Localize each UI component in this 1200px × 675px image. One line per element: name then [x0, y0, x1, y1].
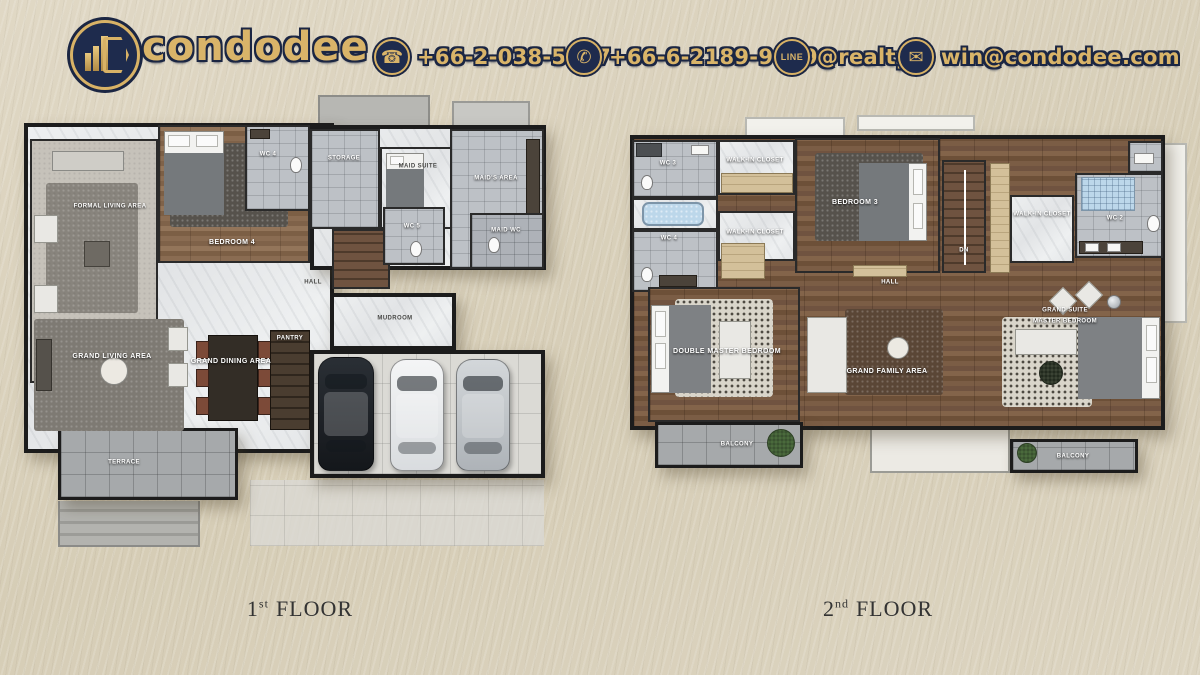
room-label-wc5: WC 5 [404, 223, 421, 230]
car-silver [456, 359, 510, 471]
sink [1085, 243, 1099, 252]
condodee-logo[interactable] [70, 20, 140, 90]
sink [1107, 243, 1121, 252]
car-rear-window [326, 440, 366, 452]
room-label-maid-suite: MAID SUITE [399, 163, 438, 170]
toilet [410, 241, 422, 257]
room-label-grand-suite-line2: MASTER BEDROOM [1033, 318, 1097, 325]
phone-icon: ☎ [374, 39, 410, 75]
email-address: win@condodee.com [941, 45, 1180, 69]
room-label-grand-living: GRAND LIVING AREA [72, 353, 151, 361]
room-label-wc2: WC 2 [1107, 215, 1124, 222]
coffee-table [887, 337, 909, 359]
staircase-down [942, 160, 986, 273]
staircase [332, 229, 390, 289]
line-handle: @realty [817, 45, 910, 69]
contact-line[interactable]: LINE @realty [774, 39, 910, 75]
car-windshield [325, 374, 367, 389]
room-label-wc3: WC 3 [660, 160, 677, 167]
bed-blanket [164, 153, 224, 215]
car-windshield [463, 376, 503, 391]
room-label-balcony-right: BALCONY [1057, 453, 1089, 460]
car-windshield [397, 376, 437, 391]
room-label-hall: HALL [881, 279, 899, 286]
dining-chair [196, 369, 209, 387]
floor1-caption: 1stFLOOR [247, 596, 353, 622]
room-label-wc4: WC 4 [260, 151, 277, 158]
plant [1017, 443, 1037, 463]
flyer-canvas: condodee ☎ +66-2-038-5897 ✆ +66-6-2189-9… [0, 0, 1200, 675]
room-label-pantry: PANTRY [277, 335, 303, 342]
floor1-plan: FORMAL LIVING AREA BEDROOM 4 WC 4 STORAG… [18, 95, 548, 550]
pillow [913, 203, 923, 229]
closet-shelving [990, 163, 1010, 273]
roof-slab [745, 117, 845, 137]
dining-chair [196, 397, 209, 415]
room-label-grand-suite-line1: GRAND SUITE [1042, 307, 1088, 314]
room-label-dn: DN [959, 247, 968, 254]
armchair [168, 363, 188, 387]
logo-building-bar [85, 53, 91, 71]
floor2-caption-word: FLOOR [856, 596, 933, 621]
car-black [318, 357, 374, 471]
pantry-cabinet [270, 330, 310, 430]
contact-email[interactable]: ✉ win@condodee.com [898, 39, 1180, 75]
bed-blanket [386, 169, 424, 207]
pillow [168, 135, 190, 147]
car-roof [324, 392, 368, 436]
whatsapp-icon: ✆ [566, 39, 602, 75]
driveway [250, 480, 544, 546]
armchair [168, 327, 188, 351]
car-roof [462, 394, 504, 438]
car-rear-window [398, 442, 436, 454]
sink-vanity [250, 129, 270, 139]
room-label-bedroom4: BEDROOM 4 [209, 239, 255, 247]
floor1-caption-word: FLOOR [276, 596, 353, 621]
plant [767, 429, 795, 457]
terrace-room [58, 428, 238, 500]
dining-table [208, 335, 258, 421]
bed-blanket [1078, 317, 1142, 399]
sofa [36, 339, 52, 391]
room-label-terrace: TERRACE [108, 459, 140, 466]
pillow [1146, 325, 1157, 351]
car-rear-window [464, 442, 502, 454]
sofa [52, 151, 124, 171]
room-label-formal-living: FORMAL LIVING AREA [74, 203, 147, 210]
room-label-mudroom: MUDROOM [377, 315, 412, 322]
pillow [196, 135, 218, 147]
shower [636, 143, 662, 157]
front-steps [58, 501, 200, 547]
floor2-caption: 2ndFLOOR [823, 596, 933, 622]
storage-room [310, 129, 380, 229]
closet-shelving [721, 173, 793, 193]
brand-name: condodee [142, 24, 369, 70]
maid-wc-room [470, 213, 544, 269]
car-roof [396, 394, 438, 438]
console-table [853, 265, 907, 277]
room-label-hall: HALL [304, 279, 322, 286]
room-label-closet-top: WALK-IN CLOSET [726, 157, 783, 164]
room-label-closet-right: WALK-IN CLOSET [1013, 211, 1070, 218]
floor1-caption-ordinal: st [259, 597, 269, 611]
walkin-closet-right-room [1010, 195, 1074, 263]
toilet [641, 175, 653, 190]
toilet [290, 157, 302, 173]
bathtub [642, 202, 704, 226]
floor2-caption-number: 2 [823, 596, 835, 621]
floor2-caption-ordinal: nd [835, 597, 849, 611]
room-label-balcony-left: BALCONY [721, 441, 753, 448]
pillow [1146, 357, 1157, 383]
chaise-lounge [807, 317, 847, 393]
room-label-wc4-upper: WC 4 [661, 235, 678, 242]
logo-building-bar [93, 46, 99, 71]
pillow [655, 311, 666, 337]
pillow [913, 169, 923, 195]
room-label-grand-family: GRAND FAMILY AREA [847, 368, 928, 376]
toilet [641, 267, 653, 282]
armchair [34, 215, 58, 243]
closet-shelving [721, 243, 765, 279]
sink [691, 145, 709, 155]
deco-ball [1107, 295, 1121, 309]
line-icon: LINE [774, 39, 810, 75]
sofa [1015, 329, 1077, 355]
shower [1081, 177, 1135, 211]
dining-chair [196, 341, 209, 359]
room-label-bedroom3: BEDROOM 3 [832, 199, 878, 207]
room-label-closet-mid: WALK-IN CLOSET [726, 229, 783, 236]
logo-d-hexagon [103, 37, 129, 73]
toilet [1147, 215, 1160, 232]
pillow [655, 343, 666, 369]
room-label-maid-wc: MAID WC [491, 227, 521, 234]
car-white [390, 359, 444, 471]
roof-slab [857, 115, 975, 131]
sink-vanity [659, 275, 697, 287]
sink [1134, 153, 1154, 164]
coffee-table [84, 241, 110, 267]
room-label-maids-area: MAID'S AREA [474, 175, 518, 182]
toilet [488, 237, 500, 253]
floor1-caption-number: 1 [247, 596, 259, 621]
room-label-grand-dining: GRAND DINING AREA [191, 358, 271, 366]
armchair [34, 285, 58, 313]
floor2-plan: WC 3 WALK-IN CLOSET WC 4 WALK-IN CLOSET … [615, 115, 1190, 490]
room-label-storage: STORAGE [328, 155, 360, 162]
room-label-double-master: DOUBLE MASTER BEDROOM [673, 348, 781, 356]
email-icon: ✉ [898, 39, 934, 75]
plant [1039, 361, 1063, 385]
